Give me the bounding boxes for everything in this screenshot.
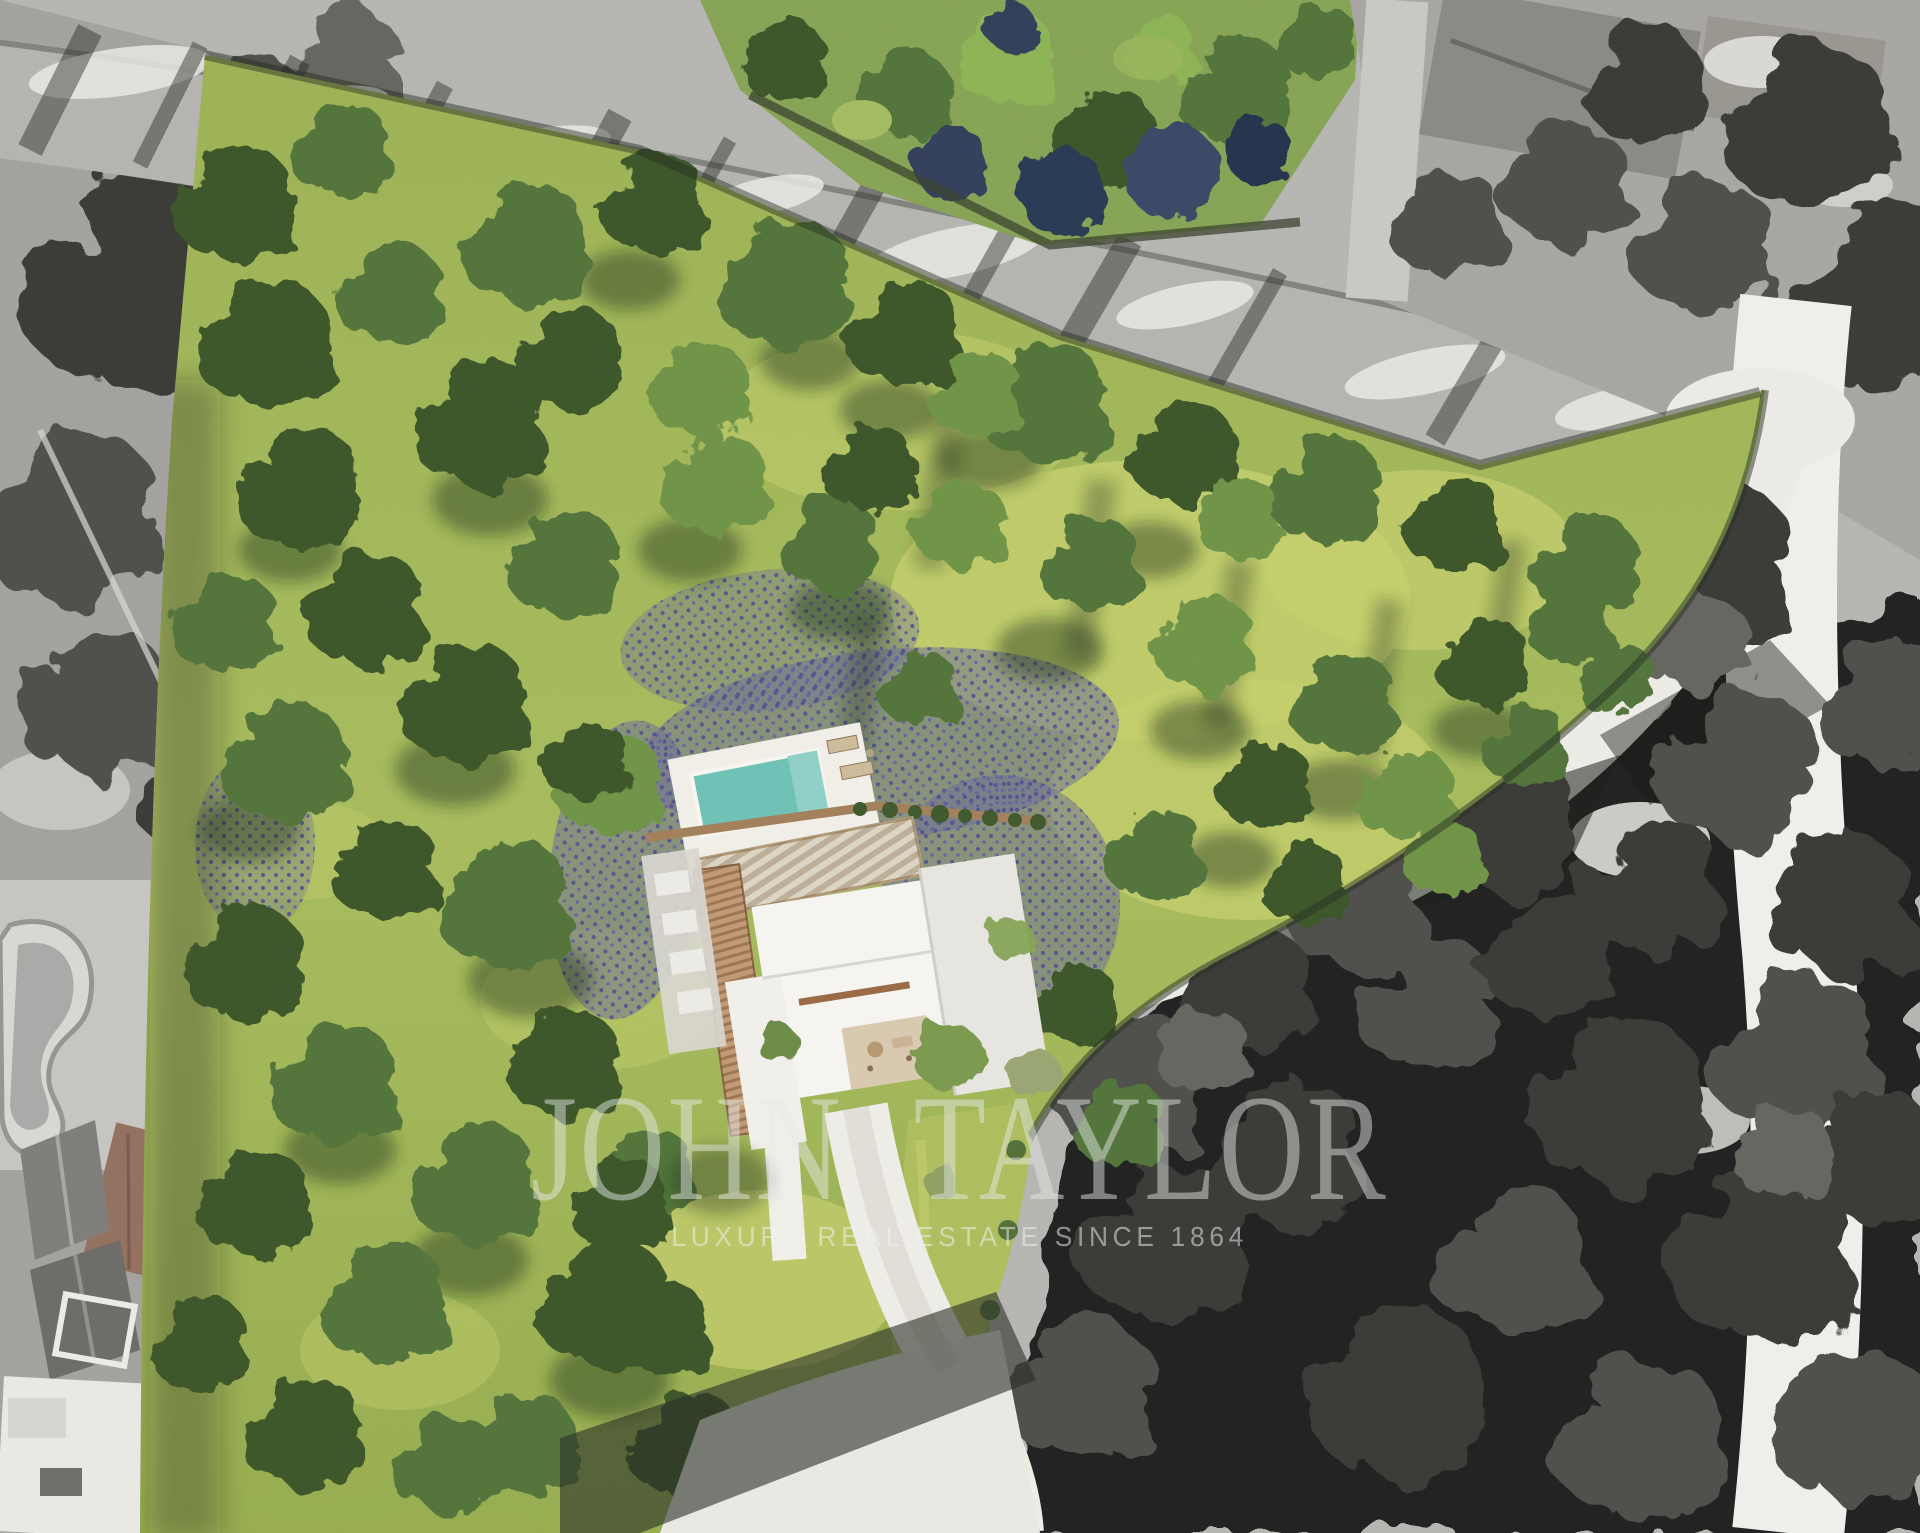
photo-grain — [0, 0, 1920, 1533]
aerial-photo: JOHN TAYLOR LUXURY REAL ESTATE SINCE 186… — [0, 0, 1920, 1533]
aerial-photo-canvas — [0, 0, 1920, 1533]
